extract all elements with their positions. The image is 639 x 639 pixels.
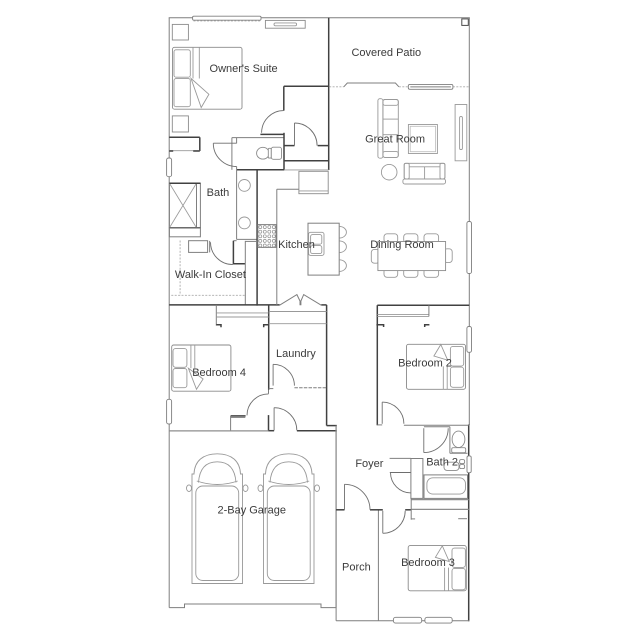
svg-text:Dining Room: Dining Room — [370, 239, 434, 251]
svg-text:Bedroom 3: Bedroom 3 — [401, 557, 455, 569]
svg-text:Bath: Bath — [207, 187, 230, 199]
svg-text:2-Bay Garage: 2-Bay Garage — [217, 505, 285, 517]
svg-text:Porch: Porch — [342, 561, 371, 573]
svg-text:Bedroom 4: Bedroom 4 — [192, 367, 246, 379]
svg-text:Bath 2: Bath 2 — [426, 456, 458, 468]
svg-text:Kitchen: Kitchen — [278, 239, 315, 251]
svg-text:Great Room: Great Room — [365, 133, 425, 145]
svg-text:Laundry: Laundry — [276, 348, 316, 360]
svg-text:Owner's Suite: Owner's Suite — [210, 63, 278, 75]
svg-text:Bedroom 2: Bedroom 2 — [398, 357, 452, 369]
svg-text:Covered Patio: Covered Patio — [351, 47, 421, 59]
svg-text:Walk-In Closet: Walk-In Closet — [175, 269, 246, 281]
svg-text:Foyer: Foyer — [355, 458, 383, 470]
